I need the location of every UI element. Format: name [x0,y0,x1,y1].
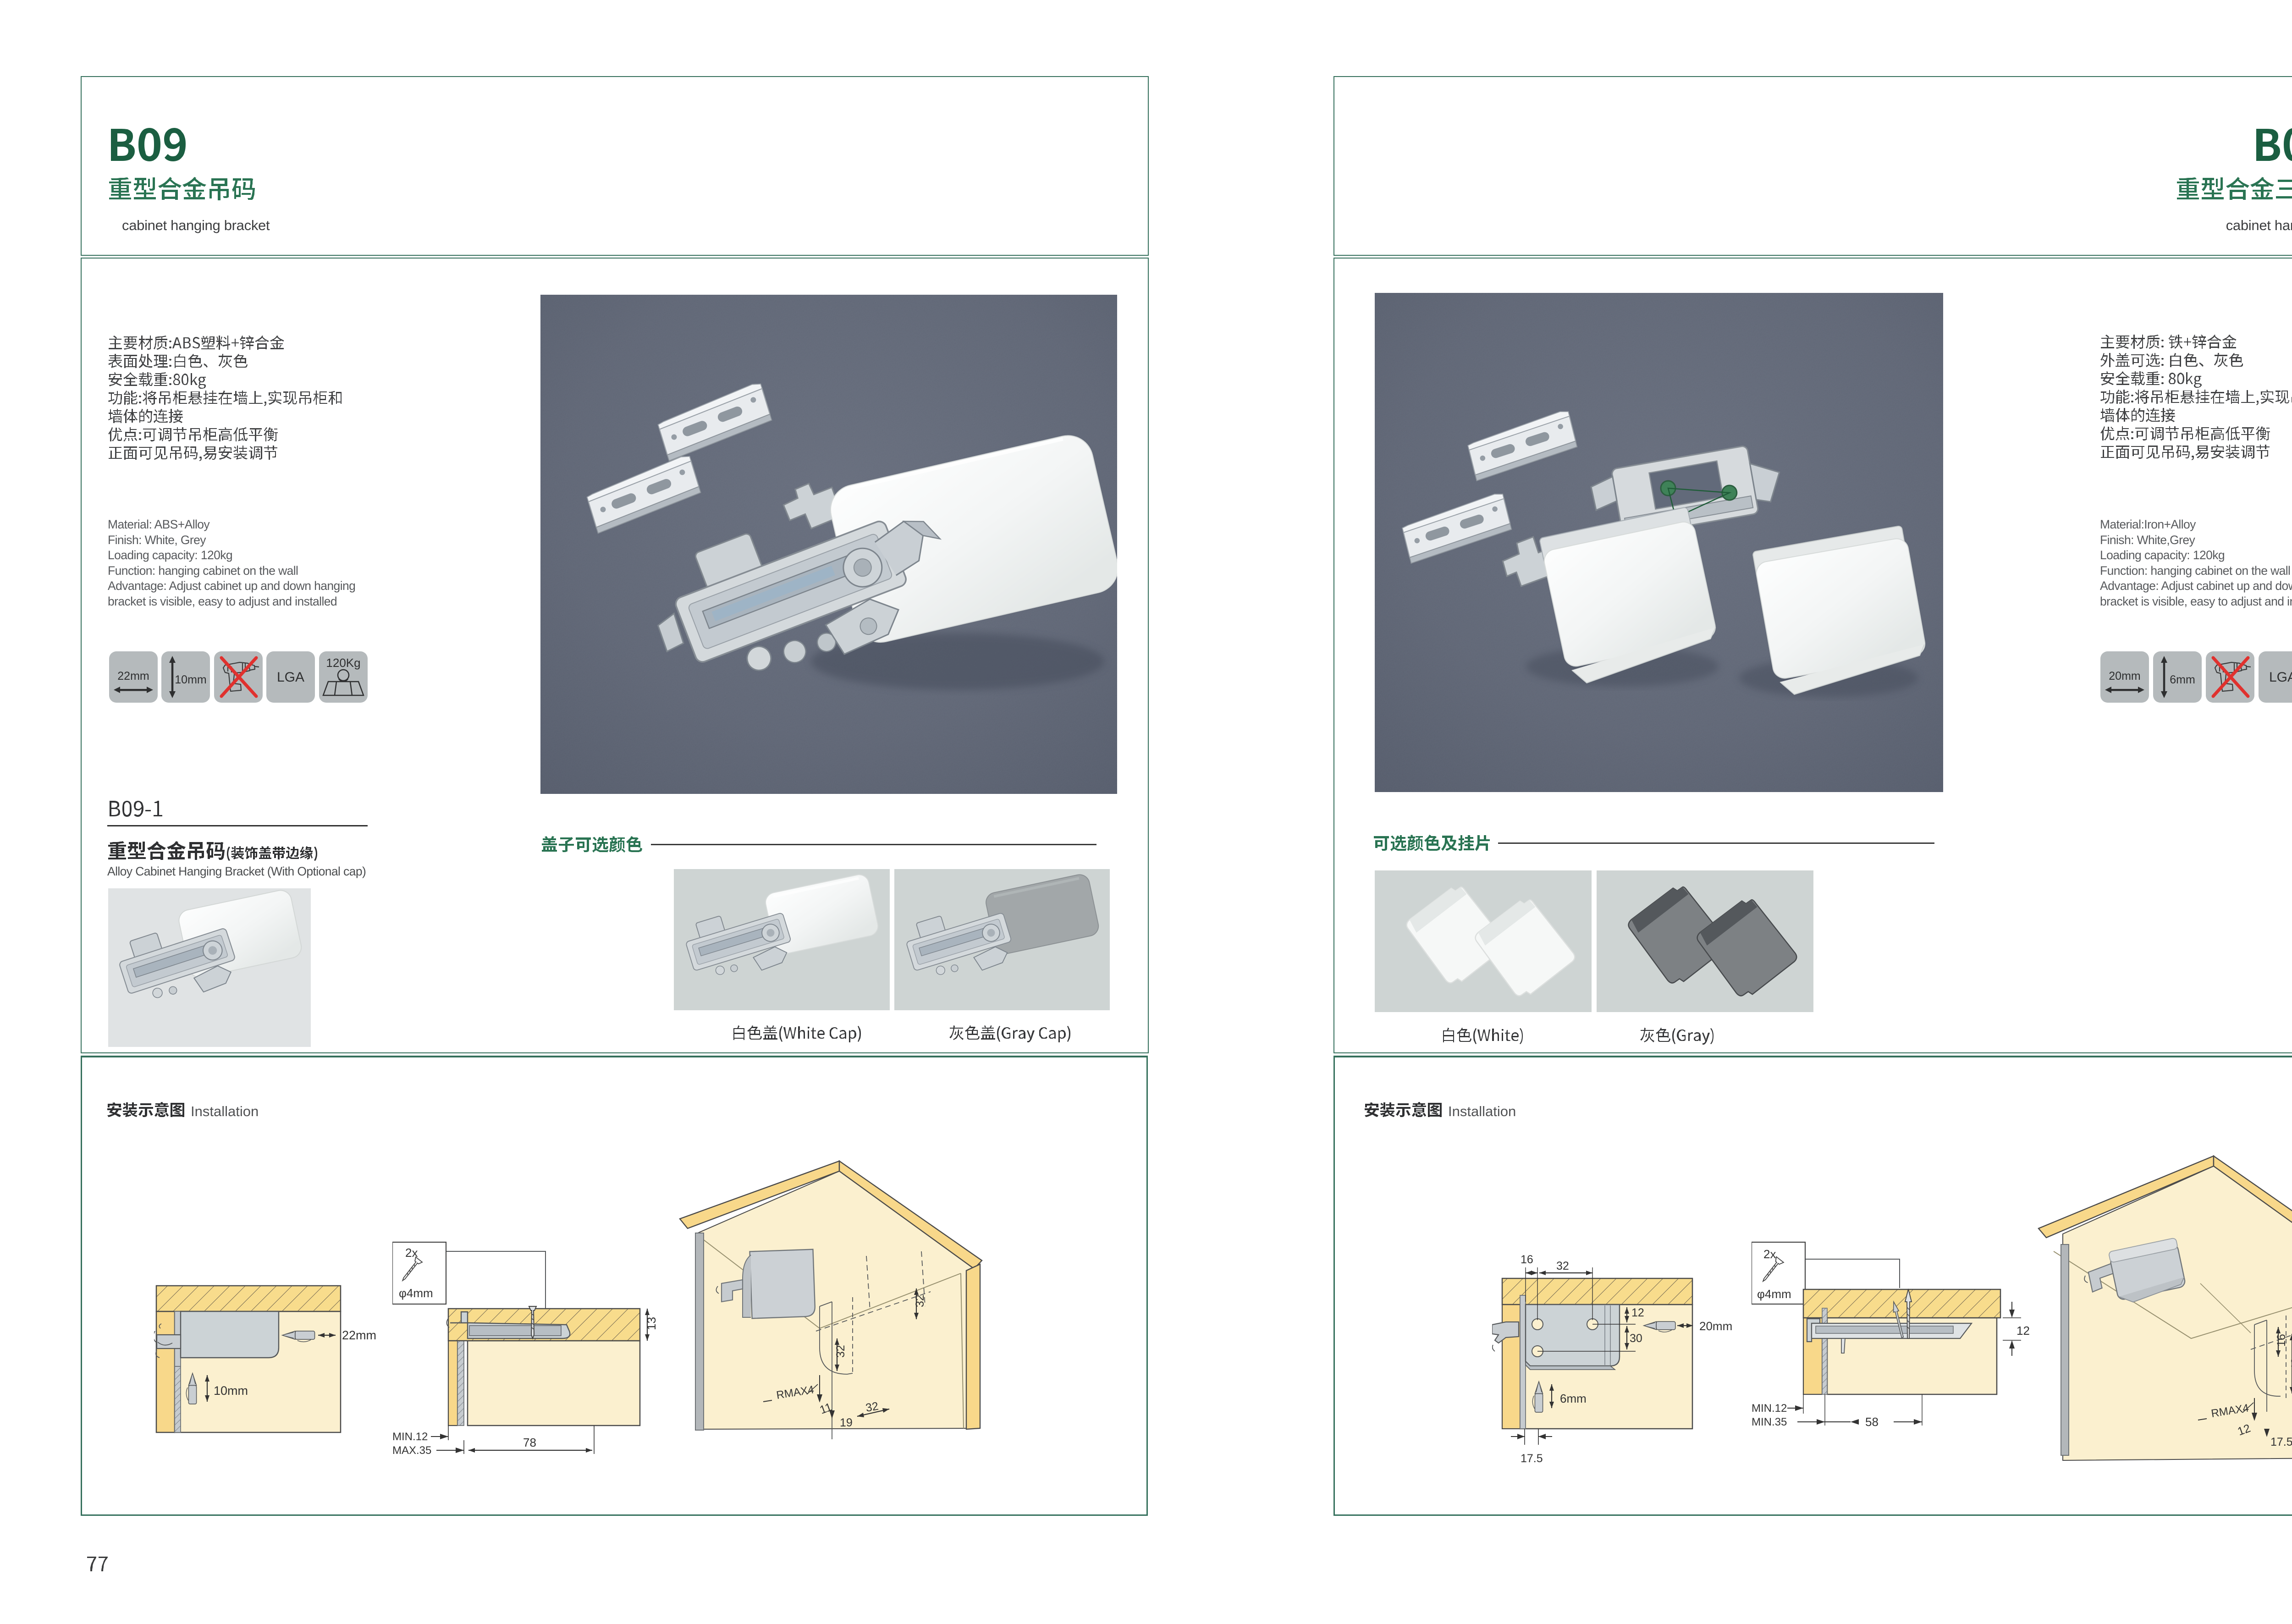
svg-text:φ4mm: φ4mm [399,1286,433,1300]
svg-text:30: 30 [1630,1332,1642,1345]
svg-text:MIN.12: MIN.12 [392,1431,428,1443]
svg-text:MAX.35: MAX.35 [392,1444,431,1457]
svg-text:6mm: 6mm [1560,1392,1587,1405]
svg-text:19: 19 [840,1416,853,1429]
svg-text:12: 12 [2017,1324,2030,1338]
svg-text:20mm: 20mm [2109,670,2140,683]
svg-text:22mm: 22mm [342,1328,376,1342]
svg-text:2x: 2x [1763,1247,1776,1261]
svg-text:42: 42 [2289,1358,2292,1371]
svg-text:16: 16 [2275,1334,2288,1347]
svg-text:LGA: LGA [277,670,304,685]
svg-text:20mm: 20mm [1699,1319,1732,1333]
svg-text:MIN.12: MIN.12 [1752,1402,1787,1415]
svg-text:32: 32 [914,1294,926,1307]
svg-text:58: 58 [1865,1415,1879,1429]
svg-text:32: 32 [1556,1260,1569,1272]
svg-text:13: 13 [645,1317,658,1330]
svg-text:10mm: 10mm [175,673,206,686]
svg-text:10mm: 10mm [214,1384,248,1398]
svg-text:φ4mm: φ4mm [1757,1287,1791,1301]
svg-text:6mm: 6mm [2170,673,2195,686]
svg-text:78: 78 [523,1436,536,1449]
svg-text:16: 16 [1521,1253,1533,1266]
svg-text:LGA: LGA [2269,670,2292,685]
svg-text:MIN.35: MIN.35 [1752,1416,1787,1428]
svg-text:17.5: 17.5 [1521,1452,1543,1465]
svg-text:32: 32 [865,1400,879,1415]
svg-text:17.5: 17.5 [2270,1436,2292,1448]
svg-text:120Kg: 120Kg [326,656,360,670]
svg-text:22mm: 22mm [117,670,149,683]
svg-text:32: 32 [834,1345,847,1358]
svg-text:12: 12 [1631,1306,1644,1319]
